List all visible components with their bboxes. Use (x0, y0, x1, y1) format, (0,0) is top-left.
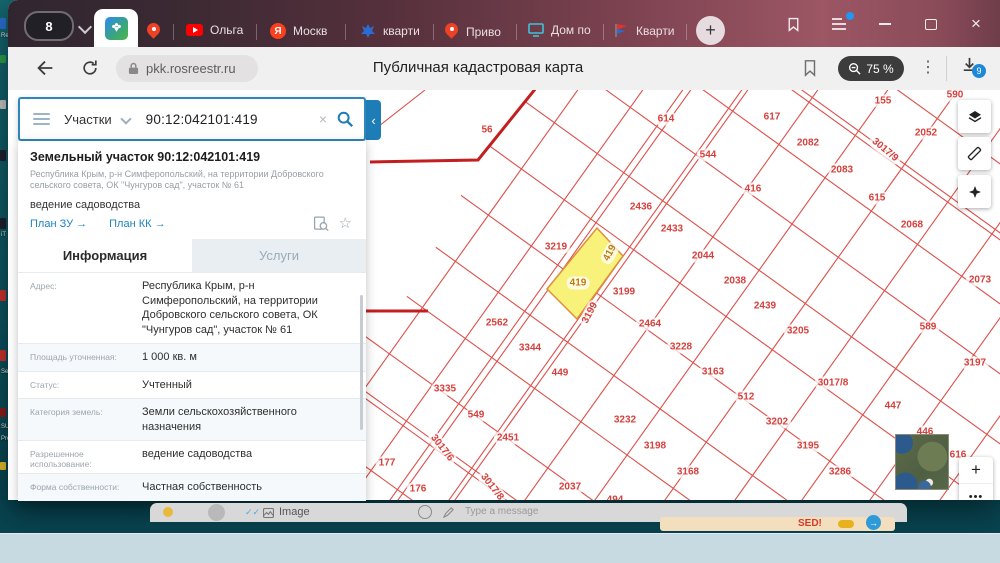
downloads-button[interactable]: 9 (960, 55, 979, 79)
document-search-icon[interactable] (313, 216, 329, 231)
basemap-preview[interactable] (895, 434, 949, 490)
bookmark-icon[interactable] (801, 58, 819, 78)
side-panels-button[interactable] (780, 14, 806, 34)
parcel-label: 3168 (674, 466, 702, 479)
parcel-label: 544 (697, 149, 720, 162)
parcel-label: 3219 (542, 241, 570, 254)
info-label: Разрешенное использование: (18, 441, 136, 473)
info-fields: Адрес: Республика Крым, р-н Симферопольс… (18, 272, 366, 501)
parcel-label: 2082 (794, 137, 822, 150)
desktop-icon-fragment (0, 55, 6, 63)
taskbar: 1 Tomorrow's high Near record Search PRE… (0, 533, 1000, 563)
parcel-label: 449 (549, 367, 572, 380)
emblem-icon (360, 23, 376, 39)
youtube-icon (186, 24, 203, 36)
tab-flag[interactable]: Кварти (614, 23, 676, 38)
banner-text: SED! (798, 518, 822, 529)
page-title: Публичная кадастровая карта (298, 59, 658, 76)
parcel-label: 2037 (556, 481, 584, 494)
desktop-icon-fragment (0, 100, 6, 109)
favorite-star-icon[interactable]: ☆ (339, 214, 352, 232)
parcel-label: 2083 (828, 164, 856, 177)
parcel-label: 3198 (641, 440, 669, 453)
parcel-label: 3017/8 (476, 469, 509, 500)
parcel-label: 615 (866, 192, 889, 205)
parcel-label: 2451 (494, 432, 522, 445)
info-value: Частная собственность (136, 474, 354, 501)
parcel-label: 549 (465, 409, 488, 422)
parcel-label: 3195 (794, 440, 822, 453)
downloads-badge: 9 (972, 64, 986, 78)
tab-counter-button[interactable]: 8 (24, 11, 74, 41)
info-row: Форма собственности: Частная собственнос… (18, 473, 366, 501)
result-title: Земельный участок 90:12:042101:419 (30, 150, 354, 164)
parcel-label: 56 (478, 124, 495, 137)
background-banner: SED! → (660, 517, 895, 531)
info-row: Разрешенное использование: ведение садов… (18, 440, 366, 473)
parcel-label: 2439 (751, 300, 779, 313)
parcel-label: 617 (761, 111, 784, 124)
divider (946, 56, 947, 81)
parcel-label: 2436 (627, 201, 655, 214)
parcel-label: 3017/6 (426, 430, 459, 467)
minimize-button[interactable] (872, 14, 898, 34)
parcel-label: 419 (599, 240, 621, 266)
yandex-icon: Я (270, 23, 286, 39)
tab-emblem[interactable]: кварти (360, 23, 425, 39)
map-pin-icon (445, 23, 459, 40)
maximize-button[interactable] (918, 14, 944, 34)
result-usage: ведение садоводства (30, 199, 354, 211)
read-ticks: ✓✓ (245, 507, 260, 518)
new-tab-button[interactable]: + (696, 16, 725, 45)
result-subtitle: Республика Крым, р-н Симферопольский, на… (30, 169, 340, 191)
measure-button[interactable] (958, 137, 991, 170)
desktop-icon-fragment (0, 350, 6, 361)
zoom-extra-button[interactable]: ••• (959, 483, 993, 500)
pencil-icon[interactable] (443, 507, 454, 518)
parcel-info-panel: Земельный участок 90:12:042101:419 Респу… (18, 141, 366, 501)
desktop-icon-fragment (0, 218, 6, 229)
info-value: Учтенный (136, 372, 354, 399)
info-label: Площадь уточненная: (18, 344, 136, 371)
info-value: Земли сельскохозяйственного назначения (136, 399, 354, 440)
url-text: pkk.rosreestr.ru (146, 61, 236, 76)
panel-scrollbar[interactable] (360, 295, 363, 430)
parcel-label: 3017/9 (867, 133, 903, 166)
tab-list-chevron-icon[interactable] (78, 20, 92, 34)
info-row: Адрес: Республика Крым, р-н Симферопольс… (18, 272, 366, 343)
lock-icon (128, 62, 139, 75)
parcel-label: 447 (882, 400, 905, 413)
panel-tab[interactable]: Информация (18, 239, 192, 272)
menu-icon[interactable] (33, 113, 50, 125)
tab-youtube[interactable]: Ольга (186, 23, 252, 37)
panel-tabs: ИнформацияУслуги (18, 239, 366, 272)
plan-kk-link[interactable]: План КК → (109, 218, 165, 230)
toggle (838, 520, 854, 528)
parcel-label: 3228 (667, 341, 695, 354)
screen: ReiTSecSUIPro 8 Ольга Я (0, 0, 1000, 563)
zoom-out-icon (848, 62, 861, 75)
browser-window: 8 Ольга Я Москв (8, 0, 1000, 500)
desktop-icon-fragment (0, 290, 6, 301)
media-label: Image (279, 506, 310, 518)
parcel-label: 155 (872, 95, 895, 108)
parcel-label: 2073 (966, 274, 994, 287)
parcel-label: 3232 (611, 414, 639, 427)
tab-yandex[interactable]: Я Москв (270, 23, 333, 39)
parcel-label: 177 (376, 457, 399, 470)
url-field[interactable]: pkk.rosreestr.ru (116, 55, 258, 82)
address-bar: pkk.rosreestr.ru Публичная кадастровая к… (8, 47, 1000, 90)
info-row: Площадь уточненная: 1 000 кв. м (18, 343, 366, 371)
desktop-label: iT (1, 232, 6, 238)
pkk-logo-icon (105, 17, 128, 40)
parcel-label: 3202 (763, 416, 791, 429)
search-input[interactable]: 90:12:042101:419 (146, 112, 258, 127)
info-label: Статус: (18, 372, 136, 399)
info-value: Республика Крым, р-н Симферопольский, на… (136, 273, 354, 343)
desktop-icon-fragment (0, 18, 6, 29)
tab-pin-2[interactable]: Приво (445, 23, 504, 40)
parcel-label: 589 (917, 321, 940, 334)
tab-pin-1[interactable] (147, 23, 161, 40)
emoji-icon (163, 507, 173, 517)
panel-collapse-button[interactable]: ‹ (366, 100, 381, 140)
search-icon[interactable] (336, 110, 354, 128)
search-category-select[interactable]: Участки (64, 112, 112, 127)
map-pin-icon (147, 23, 161, 40)
parcel-label: 3197 (961, 357, 989, 370)
parcel-label: 2038 (721, 275, 749, 288)
browser-tab-bar: 8 Ольга Я Москв (8, 0, 1000, 47)
parcel-label: 3199 (578, 297, 603, 328)
parcel-label: 2052 (912, 127, 940, 140)
parcel-label: 176 (407, 483, 430, 496)
zoom-level-button[interactable]: 75 % (838, 56, 904, 81)
parcel-label: 494 (604, 494, 627, 501)
zoom-in-button[interactable]: + (959, 457, 993, 483)
info-label: Форма собственности: (18, 474, 136, 501)
parcel-label: 2068 (898, 219, 926, 232)
info-label: Адрес: (18, 273, 136, 343)
parcel-label: 3017/8 (815, 377, 852, 390)
parcel-label: 614 (655, 113, 678, 126)
avatar (208, 504, 225, 521)
more-options-button[interactable]: ⋮ (920, 57, 936, 77)
parcel-label: 2433 (658, 223, 686, 236)
layers-button[interactable] (958, 100, 991, 133)
arrow-button: → (866, 515, 881, 530)
smiley-icon[interactable] (418, 505, 432, 519)
image-icon (263, 508, 274, 518)
tab-monitor[interactable]: Дом по (528, 23, 591, 37)
back-button[interactable] (34, 57, 56, 79)
clear-search-icon[interactable]: × (319, 111, 327, 127)
desktop-icon-fragment (0, 150, 6, 161)
desktop-icon-fragment (0, 408, 6, 417)
browser-menu-button[interactable] (826, 14, 852, 34)
search-box: Участки 90:12:042101:419 × (18, 97, 366, 141)
flag-icon (614, 23, 629, 38)
monitor-icon (528, 23, 544, 37)
panel-tab[interactable]: Услуги (192, 239, 366, 272)
desktop-icon-fragment (0, 462, 6, 470)
parcel-label: 3286 (826, 466, 854, 479)
close-button[interactable]: × (963, 14, 989, 34)
info-value: ведение садоводства (136, 441, 354, 473)
parcel-label: 512 (735, 391, 758, 404)
message-input[interactable]: Type a message (465, 506, 538, 517)
chevron-down-icon[interactable] (120, 113, 131, 124)
parcel-label: 3344 (516, 342, 544, 355)
reload-button[interactable] (80, 58, 100, 78)
parcel-label: 2562 (483, 317, 511, 330)
parcel-label: 3199 (610, 286, 638, 299)
tab-pkk-active[interactable] (94, 9, 138, 47)
parcel-label: 3335 (431, 383, 459, 396)
info-row: Категория земель: Земли сельскохозяйстве… (18, 398, 366, 440)
parcel-label: 416 (742, 183, 765, 196)
position-button[interactable] (958, 175, 991, 208)
info-row: Статус: Учтенный (18, 371, 366, 399)
parcel-label: 2464 (636, 318, 664, 331)
info-label: Категория земель: (18, 399, 136, 440)
parcel-label: 3205 (784, 325, 812, 338)
info-value: 1 000 кв. м (136, 344, 354, 371)
parcel-label: 3163 (699, 366, 727, 379)
parcel-label: 419 (567, 277, 590, 290)
notification-dot (846, 12, 854, 20)
plan-zu-link[interactable]: План ЗУ → (30, 218, 87, 230)
parcel-label: 2044 (689, 250, 717, 263)
zoom-controls: + ••• − (959, 457, 993, 500)
